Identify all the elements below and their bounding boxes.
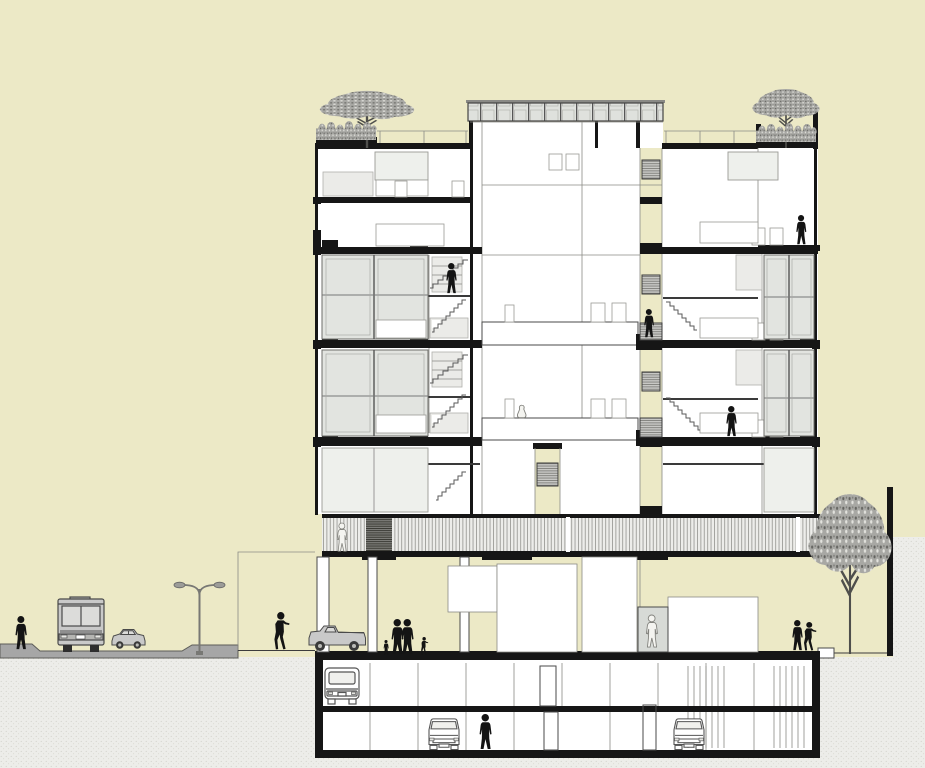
section-drawing — [0, 0, 925, 768]
pilotis-column — [368, 557, 377, 652]
basement-parking — [315, 655, 820, 758]
walkway-stair — [366, 518, 392, 551]
ground-step — [818, 648, 834, 658]
roof-shrubs-left — [316, 121, 377, 140]
street-tree — [808, 494, 891, 654]
boundary-wall — [887, 487, 893, 656]
parked-car-basement2-left — [429, 719, 459, 750]
car-on-road — [112, 630, 145, 649]
basement-mid-slab — [323, 706, 812, 712]
resident-right-1 — [792, 620, 802, 650]
basement-interior — [323, 660, 812, 750]
vent-grille — [642, 160, 660, 179]
center-section — [470, 122, 663, 514]
roof-shrubs-right — [756, 123, 817, 142]
family-adult-2 — [402, 619, 414, 654]
walkway-deck — [322, 514, 818, 560]
city-bus-rear — [58, 597, 104, 652]
vent-grille — [537, 463, 558, 486]
bridge-slab-upper — [482, 322, 638, 345]
architectural-section-scene — [0, 0, 925, 768]
vent-grille — [642, 372, 660, 391]
vent-grille — [642, 275, 660, 294]
parked-car-basement1 — [325, 668, 359, 704]
family-adult-1 — [392, 619, 404, 654]
parked-car-basement2-right — [674, 719, 704, 750]
pedestrian-near-building — [274, 612, 289, 649]
glazing-zones — [322, 255, 428, 512]
soil-hatch-right — [893, 537, 925, 658]
resident-right-2 — [804, 622, 816, 651]
street-lamp — [174, 582, 225, 655]
balcony-grille — [640, 418, 662, 437]
bridge-slab-lower — [482, 418, 638, 440]
ground-floor — [317, 557, 758, 652]
